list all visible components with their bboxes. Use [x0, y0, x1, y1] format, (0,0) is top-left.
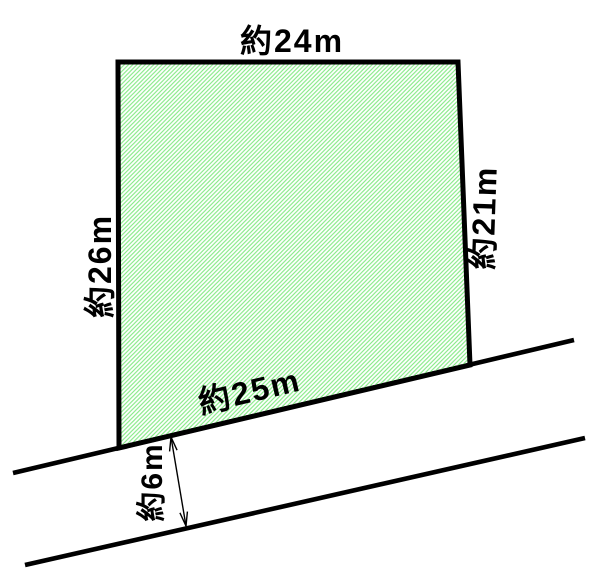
road-lower-edge-line [25, 438, 585, 565]
land-plot-diagram-canvas: 約24m 約26m 約21m 約25m 約6m [0, 0, 600, 579]
road-width-label: 約6m [136, 442, 169, 521]
road-width-arrow [171, 437, 186, 526]
land-plot-diagram: 約24m 約26m 約21m 約25m 約6m [0, 0, 600, 579]
left-dimension-label: 約26m [82, 214, 118, 318]
top-dimension-label: 約24m [240, 23, 344, 59]
right-dimension-label: 約21m [464, 165, 504, 270]
